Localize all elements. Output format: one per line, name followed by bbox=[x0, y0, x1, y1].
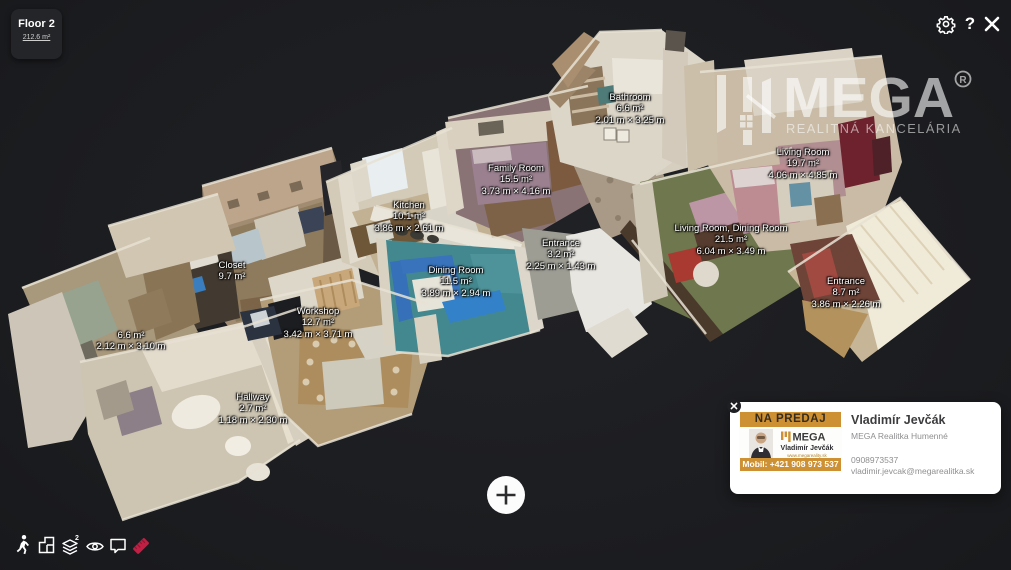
svg-text:MEGA: MEGA bbox=[793, 432, 826, 444]
svg-text:R: R bbox=[959, 75, 967, 86]
svg-text:2: 2 bbox=[75, 535, 79, 542]
svg-text:REALITNÁ KANCELÁRIA: REALITNÁ KANCELÁRIA bbox=[786, 121, 962, 136]
